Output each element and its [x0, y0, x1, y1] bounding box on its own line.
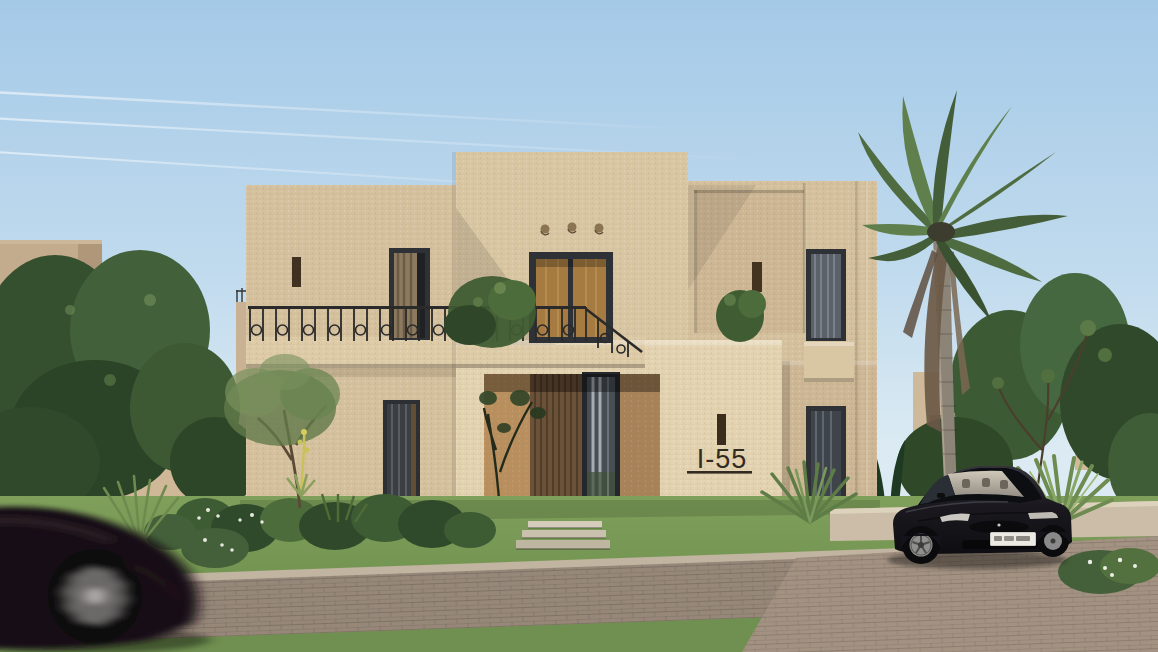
- main-house: I-55: [246, 150, 877, 555]
- right-upper-window: [806, 249, 846, 341]
- entrance-glass-door: [582, 372, 620, 516]
- house-number: I-55: [697, 444, 748, 474]
- panel-sconce: [752, 262, 762, 292]
- step: [516, 540, 610, 549]
- license-plate: [990, 532, 1036, 546]
- central-window: [529, 252, 613, 343]
- step: [528, 521, 602, 528]
- car-mirror: [937, 493, 945, 498]
- tower-sconce: [292, 257, 301, 287]
- ground-window-left: [383, 400, 420, 505]
- headlight-right: [1028, 512, 1058, 519]
- blurred-wheel: [48, 549, 142, 643]
- step: [522, 530, 606, 538]
- entrance-steps: [516, 521, 610, 550]
- window-sill-box: [804, 342, 854, 382]
- house-number-underline: [687, 471, 752, 474]
- architectural-rendering: I-55: [0, 0, 1158, 652]
- entrance-sconce: [717, 414, 726, 445]
- right-lower-window: [806, 406, 846, 507]
